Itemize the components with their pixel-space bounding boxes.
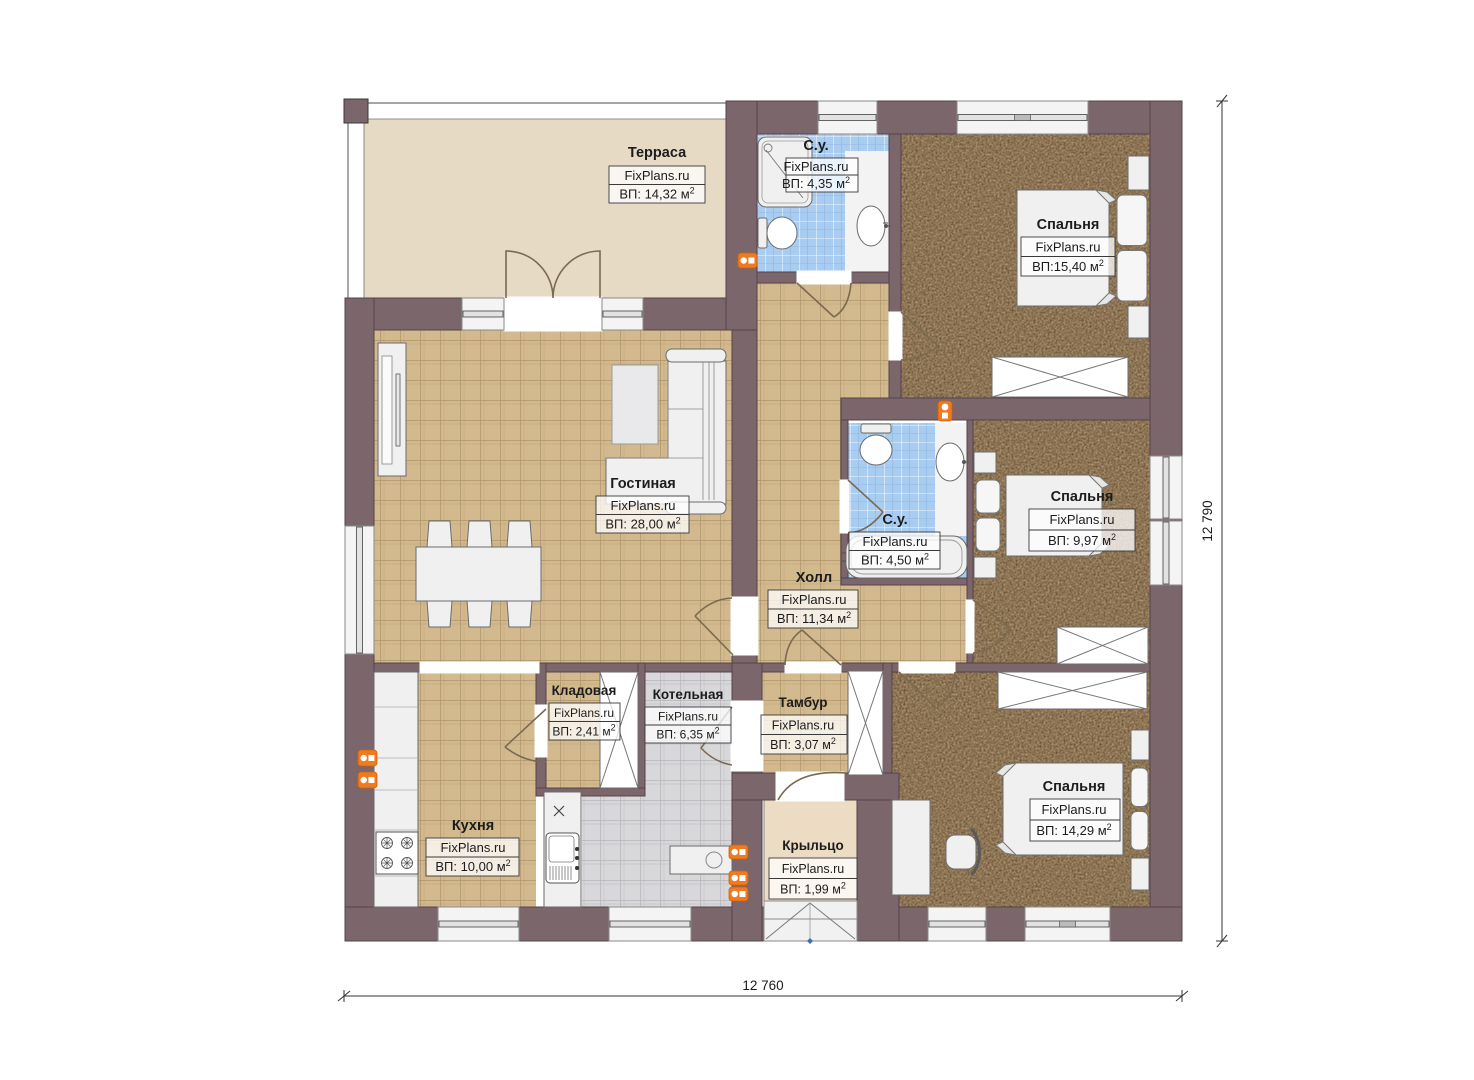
svg-text:ВП: 3,07 м2: ВП: 3,07 м2 <box>770 736 836 752</box>
svg-text:ВП: 4,50 м2: ВП: 4,50 м2 <box>861 551 929 567</box>
svg-text:Котельная: Котельная <box>653 687 724 702</box>
svg-text:ВП: 9,97 м2: ВП: 9,97 м2 <box>1048 532 1116 548</box>
svg-text:Терраса: Терраса <box>628 145 687 161</box>
svg-text:Тамбур: Тамбур <box>779 695 828 710</box>
svg-text:FixPlans.ru: FixPlans.ru <box>783 159 848 174</box>
svg-text:С.у.: С.у. <box>803 138 828 154</box>
svg-text:Спальня: Спальня <box>1051 489 1114 505</box>
svg-text:Холл: Холл <box>796 570 832 586</box>
svg-text:Кухня: Кухня <box>452 818 494 834</box>
svg-text:С.у.: С.у. <box>882 512 907 528</box>
svg-text:FixPlans.ru: FixPlans.ru <box>658 710 718 724</box>
svg-text:FixPlans.ru: FixPlans.ru <box>772 718 835 732</box>
svg-text:FixPlans.ru: FixPlans.ru <box>1035 239 1100 254</box>
svg-text:FixPlans.ru: FixPlans.ru <box>624 168 689 183</box>
svg-text:Крыльцо: Крыльцо <box>782 838 843 853</box>
svg-text:Спальня: Спальня <box>1037 217 1100 233</box>
svg-text:ВП: 10,00 м2: ВП: 10,00 м2 <box>435 858 510 874</box>
svg-text:ВП: 6,35 м2: ВП: 6,35 м2 <box>656 726 719 742</box>
svg-text:FixPlans.ru: FixPlans.ru <box>1041 802 1106 817</box>
svg-text:ВП: 1,99 м2: ВП: 1,99 м2 <box>780 880 846 896</box>
svg-text:ВП: 11,34 м2: ВП: 11,34 м2 <box>777 610 851 626</box>
svg-text:FixPlans.ru: FixPlans.ru <box>782 862 845 876</box>
svg-text:FixPlans.ru: FixPlans.ru <box>554 706 614 720</box>
svg-text:12 790: 12 790 <box>1200 500 1215 541</box>
svg-text:ВП: 28,00 м2: ВП: 28,00 м2 <box>605 515 680 531</box>
svg-text:ВП: 14,32 м2: ВП: 14,32 м2 <box>619 185 694 201</box>
svg-text:ВП:15,40 м2: ВП:15,40 м2 <box>1032 258 1104 274</box>
svg-text:FixPlans.ru: FixPlans.ru <box>1049 512 1114 527</box>
svg-text:ВП: 4,35 м2: ВП: 4,35 м2 <box>782 175 850 191</box>
svg-text:FixPlans.ru: FixPlans.ru <box>440 840 505 855</box>
svg-text:FixPlans.ru: FixPlans.ru <box>781 592 846 607</box>
svg-text:FixPlans.ru: FixPlans.ru <box>610 498 675 513</box>
svg-text:Спальня: Спальня <box>1043 779 1106 795</box>
svg-text:12 760: 12 760 <box>742 978 783 993</box>
svg-text:FixPlans.ru: FixPlans.ru <box>862 534 927 549</box>
svg-text:Кладовая: Кладовая <box>552 683 617 698</box>
svg-text:ВП: 14,29 м2: ВП: 14,29 м2 <box>1036 822 1111 838</box>
svg-text:Гостиная: Гостиная <box>610 476 676 492</box>
svg-text:ВП: 2,41 м2: ВП: 2,41 м2 <box>552 722 615 738</box>
